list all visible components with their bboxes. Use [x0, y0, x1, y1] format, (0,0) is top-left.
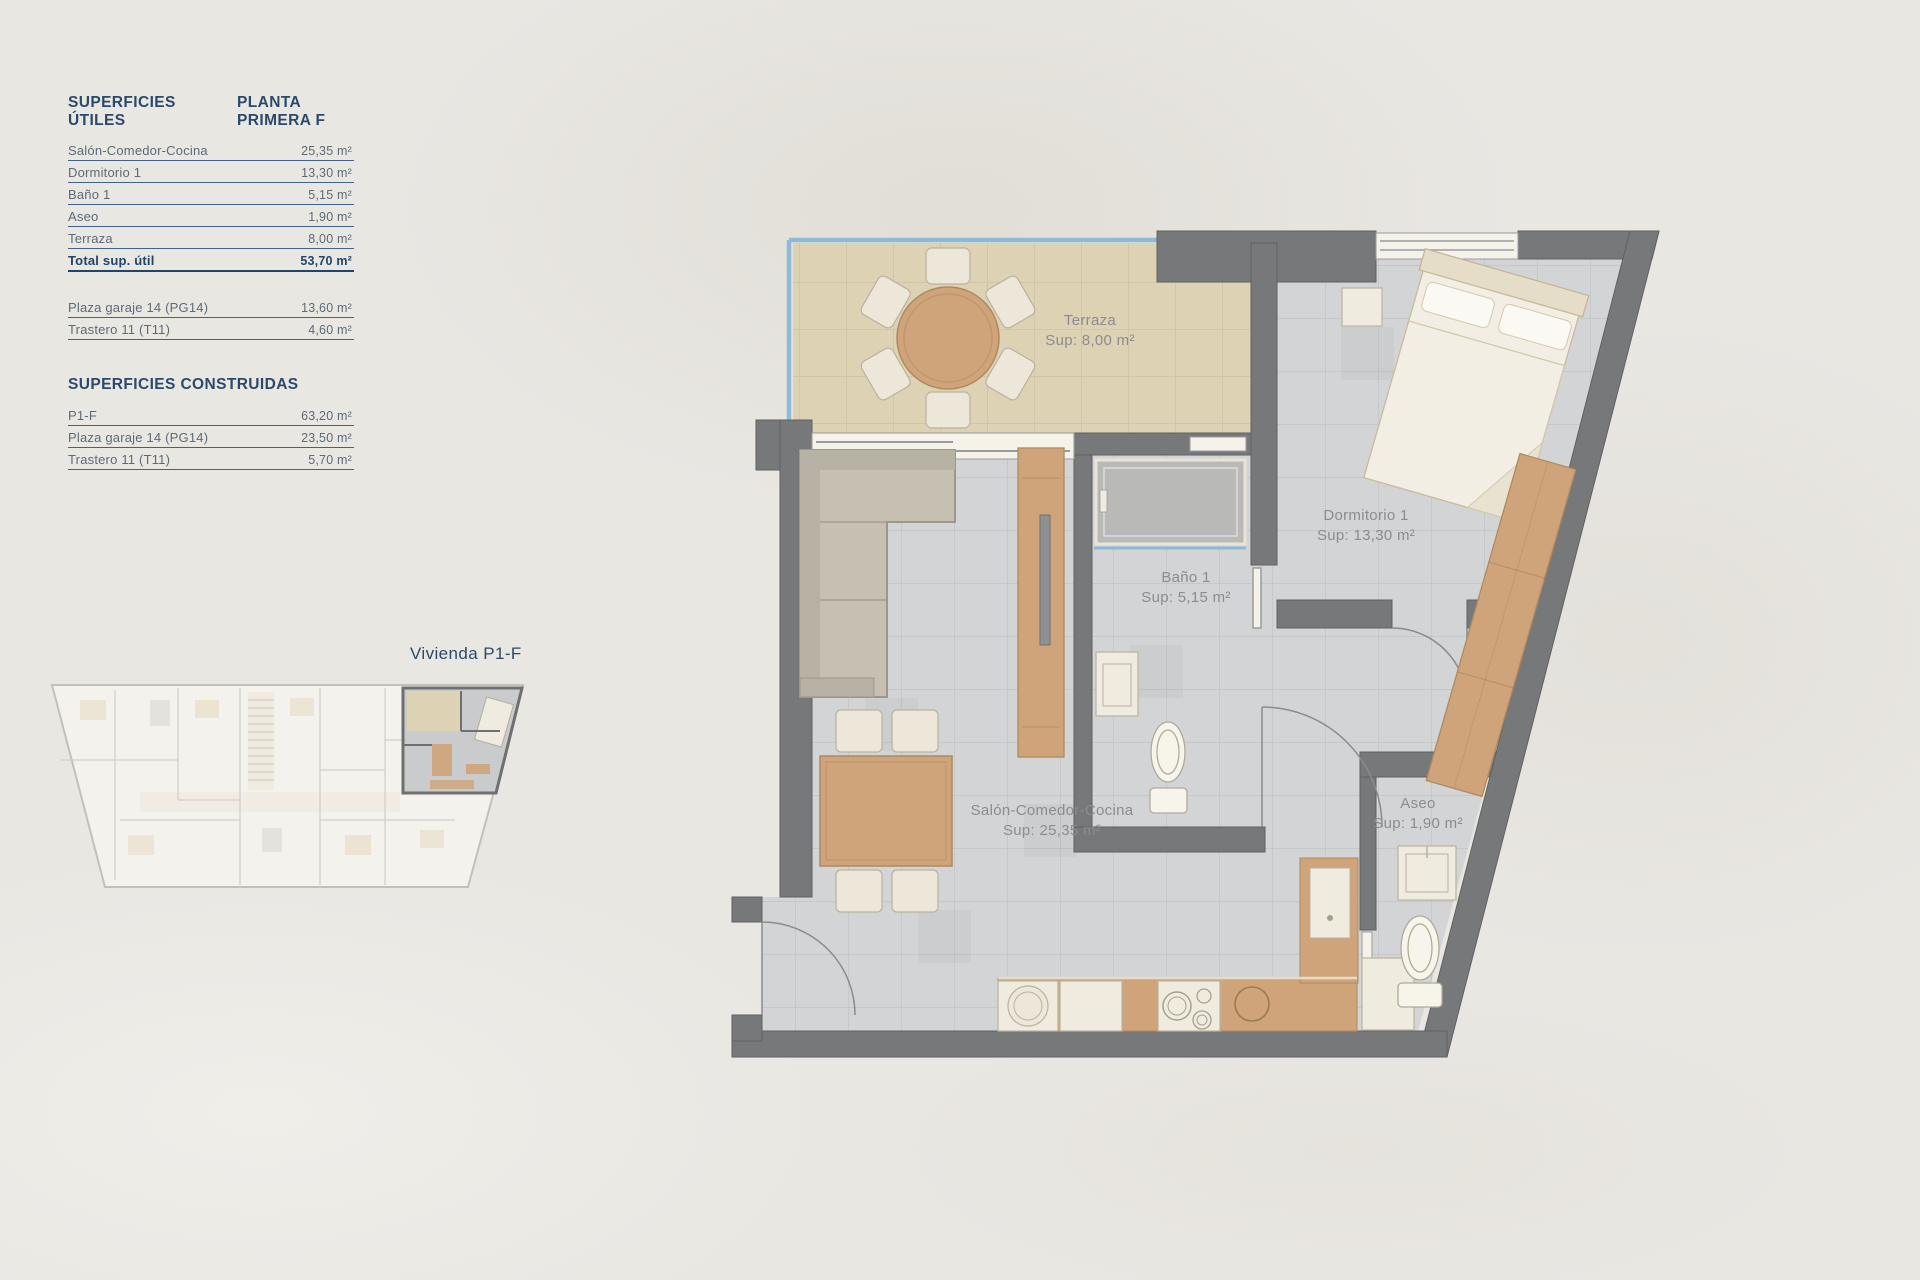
tv-cabinet: [1018, 448, 1064, 757]
aseo-sink: [1398, 846, 1456, 900]
floor-title: PLANTA PRIMERA F: [237, 94, 354, 130]
table-row: P1-F63,20 m²: [68, 404, 354, 426]
washing-machine: [998, 981, 1058, 1031]
room-label-dormitorio: Dormitorio 1 Sup: 13,30 m²: [1317, 506, 1415, 547]
room-label-salon: Salón-Comedor-Cocina Sup: 25,35 m²: [971, 801, 1134, 842]
table-row: Plaza garaje 14 (PG14)13,60 m²: [68, 296, 354, 318]
room-label-bano: Baño 1 Sup: 5,15 m²: [1141, 568, 1230, 609]
table-row: Plaza garaje 14 (PG14)23,50 m²: [68, 426, 354, 448]
built-areas-title: SUPERFICIES CONSTRUIDAS: [68, 376, 354, 394]
table-row-total: Total sup. útil53,70 m²: [68, 249, 354, 272]
table-row: Trastero 11 (T11)5,70 m²: [68, 448, 354, 470]
shower: [1094, 460, 1246, 548]
bath-toilet: [1150, 722, 1187, 813]
floorplan-sheet: SUPERFICIES ÚTILES PLANTA PRIMERA F Saló…: [0, 0, 1920, 1280]
table-row: Terraza8,00 m²: [68, 227, 354, 249]
table-row: Dormitorio 113,30 m²: [68, 161, 354, 183]
kitchen-cabinet: [1060, 981, 1122, 1031]
room-label-aseo: Aseo Sup: 1,90 m²: [1373, 794, 1462, 835]
nightstand: [1342, 288, 1382, 326]
oven: [1310, 868, 1350, 938]
surface-area-table: SUPERFICIES ÚTILES PLANTA PRIMERA F Saló…: [68, 94, 354, 470]
table-row: Baño 15,15 m²: [68, 183, 354, 205]
key-plan: [52, 685, 523, 887]
bath-sink: [1096, 652, 1138, 716]
main-plan: [732, 231, 1659, 1057]
table-row: Salón-Comedor-Cocina25,35 m²: [68, 139, 354, 161]
cooktop: [1158, 981, 1220, 1031]
key-plan-unit-label: Vivienda P1-F: [410, 644, 522, 664]
aseo-toilet: [1398, 916, 1442, 1007]
table-row: Trastero 11 (T11)4,60 m²: [68, 318, 354, 340]
tv: [1040, 515, 1050, 645]
useful-areas-title: SUPERFICIES ÚTILES: [68, 94, 195, 130]
table-row: Aseo1,90 m²: [68, 205, 354, 227]
bath-window: [1190, 437, 1246, 451]
key-plan-highlighted-unit: [403, 688, 522, 793]
room-label-terraza: Terraza Sup: 8,00 m²: [1045, 311, 1134, 352]
